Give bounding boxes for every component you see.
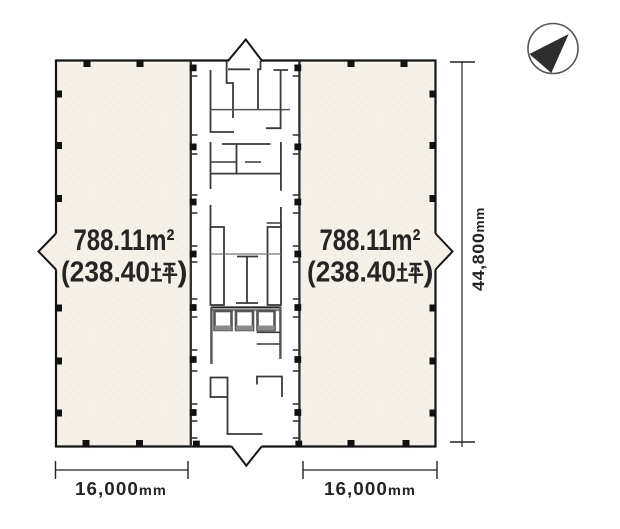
svg-text:): ) xyxy=(178,257,188,289)
svg-text:44,800mm: 44,800mm xyxy=(469,207,488,291)
svg-text:16,000mm: 16,000mm xyxy=(75,479,167,499)
svg-text:788.11m²: 788.11m² xyxy=(74,224,175,257)
svg-text:(238.40: (238.40 xyxy=(307,257,396,289)
svg-text:(238.40: (238.40 xyxy=(61,257,150,289)
svg-text:788.11m²: 788.11m² xyxy=(320,224,421,257)
svg-text:16,000mm: 16,000mm xyxy=(324,479,416,499)
svg-text:): ) xyxy=(424,257,434,289)
